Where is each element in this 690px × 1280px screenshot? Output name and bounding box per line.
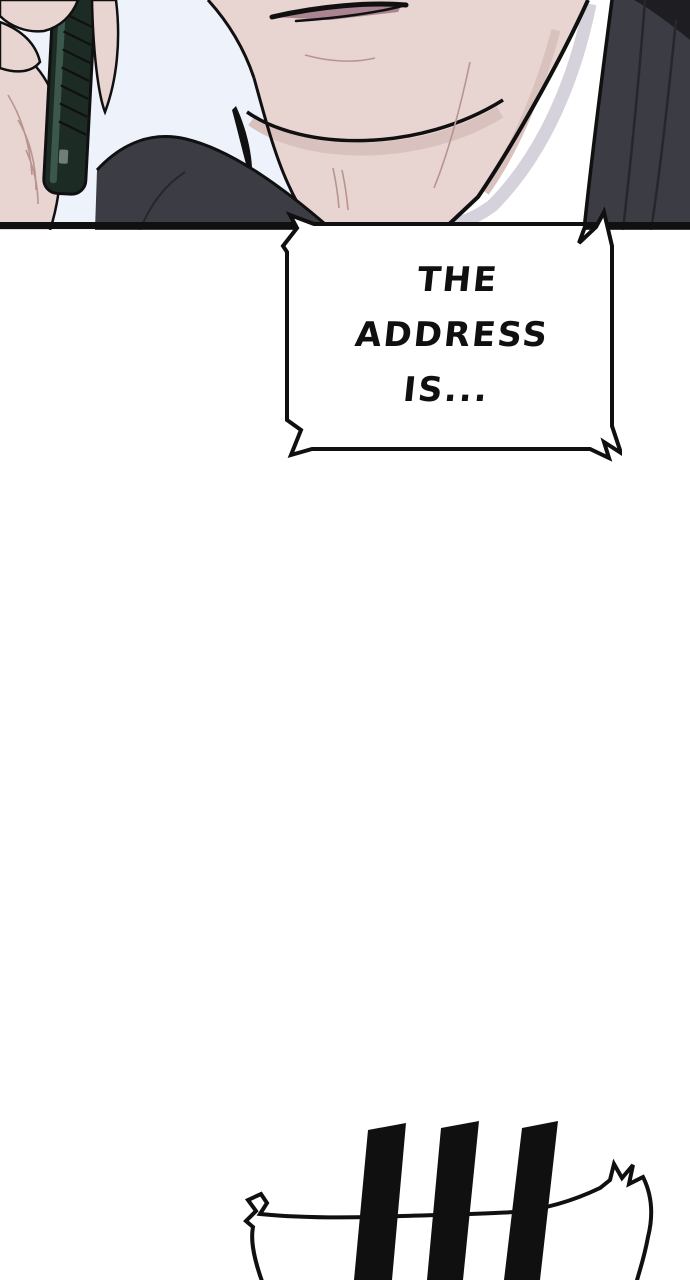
emphasis-bar — [504, 1121, 558, 1280]
emphasis-bar — [354, 1123, 406, 1280]
emphasis-bars — [354, 1121, 558, 1280]
webtoon-page: THE ADDRESS IS... — [0, 0, 690, 1280]
bubble-line: ADDRESS — [352, 308, 551, 363]
bubble-line: IS... — [400, 363, 492, 418]
comic-panel-phone-call — [0, 0, 690, 230]
speech-bubble-address: THE ADDRESS IS... — [274, 202, 622, 464]
emphasis-bar — [427, 1121, 479, 1280]
speech-bubble-text: THE ADDRESS IS... — [280, 224, 623, 447]
shout-sfx — [0, 1100, 690, 1280]
bubble-line: THE — [414, 253, 501, 308]
